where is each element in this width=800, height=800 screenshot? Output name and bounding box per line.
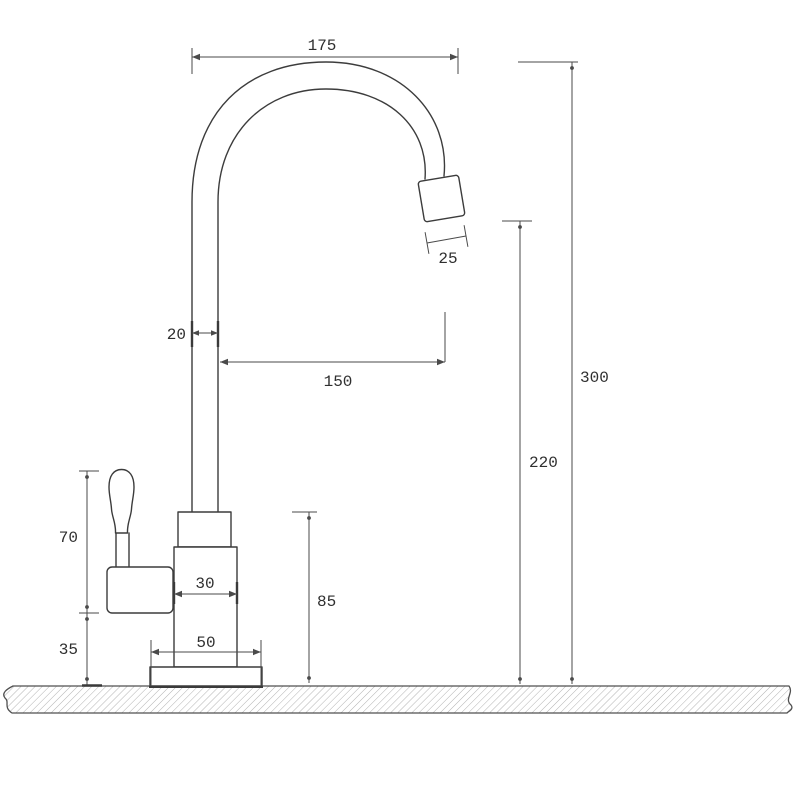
dim-label-body-width: 30 bbox=[195, 575, 214, 593]
base-flange bbox=[150, 667, 262, 686]
dim-spout-tip-width: 25 bbox=[425, 225, 468, 268]
handle-grip bbox=[109, 470, 134, 534]
dim-label-overall-height: 300 bbox=[580, 369, 609, 387]
gooseneck-spout-inner-wall bbox=[218, 89, 425, 512]
dim-label-spout-tip-width: 25 bbox=[438, 250, 457, 268]
dim-spout-reach: 175 bbox=[192, 37, 458, 74]
dim-label-handle-height: 70 bbox=[59, 529, 78, 547]
faucet-outline bbox=[107, 62, 465, 687]
faucet-dimension-drawing: 175 25 20 150 300 220 bbox=[0, 0, 800, 800]
dim-label-pipe-diameter: 20 bbox=[167, 326, 186, 344]
body-upper-section bbox=[178, 512, 231, 547]
countertop-slab bbox=[4, 686, 792, 713]
technical-drawing-svg: 175 25 20 150 300 220 bbox=[0, 0, 800, 800]
handle-valve-block bbox=[107, 567, 173, 613]
handle-stem bbox=[116, 533, 129, 567]
dim-overall-height: 300 bbox=[518, 62, 609, 684]
dim-label-spout-reach: 175 bbox=[308, 37, 337, 55]
dim-spout-projection: 150 bbox=[220, 312, 445, 391]
dim-handle-height-and-clearance: 70 35 bbox=[59, 471, 102, 686]
dim-label-base-clearance: 35 bbox=[59, 641, 78, 659]
dim-outlet-height: 220 bbox=[502, 221, 558, 684]
dim-body-height: 85 bbox=[292, 512, 336, 683]
countertop-section bbox=[4, 686, 792, 713]
spout-tip-aerator bbox=[418, 175, 465, 222]
gooseneck-spout-outer-wall bbox=[192, 62, 445, 512]
dim-label-outlet-height: 220 bbox=[529, 454, 558, 472]
dim-pipe-diameter: 20 bbox=[167, 321, 218, 347]
dim-label-body-height: 85 bbox=[317, 593, 336, 611]
dim-label-spout-projection: 150 bbox=[324, 373, 353, 391]
dim-label-base-width: 50 bbox=[196, 634, 215, 652]
